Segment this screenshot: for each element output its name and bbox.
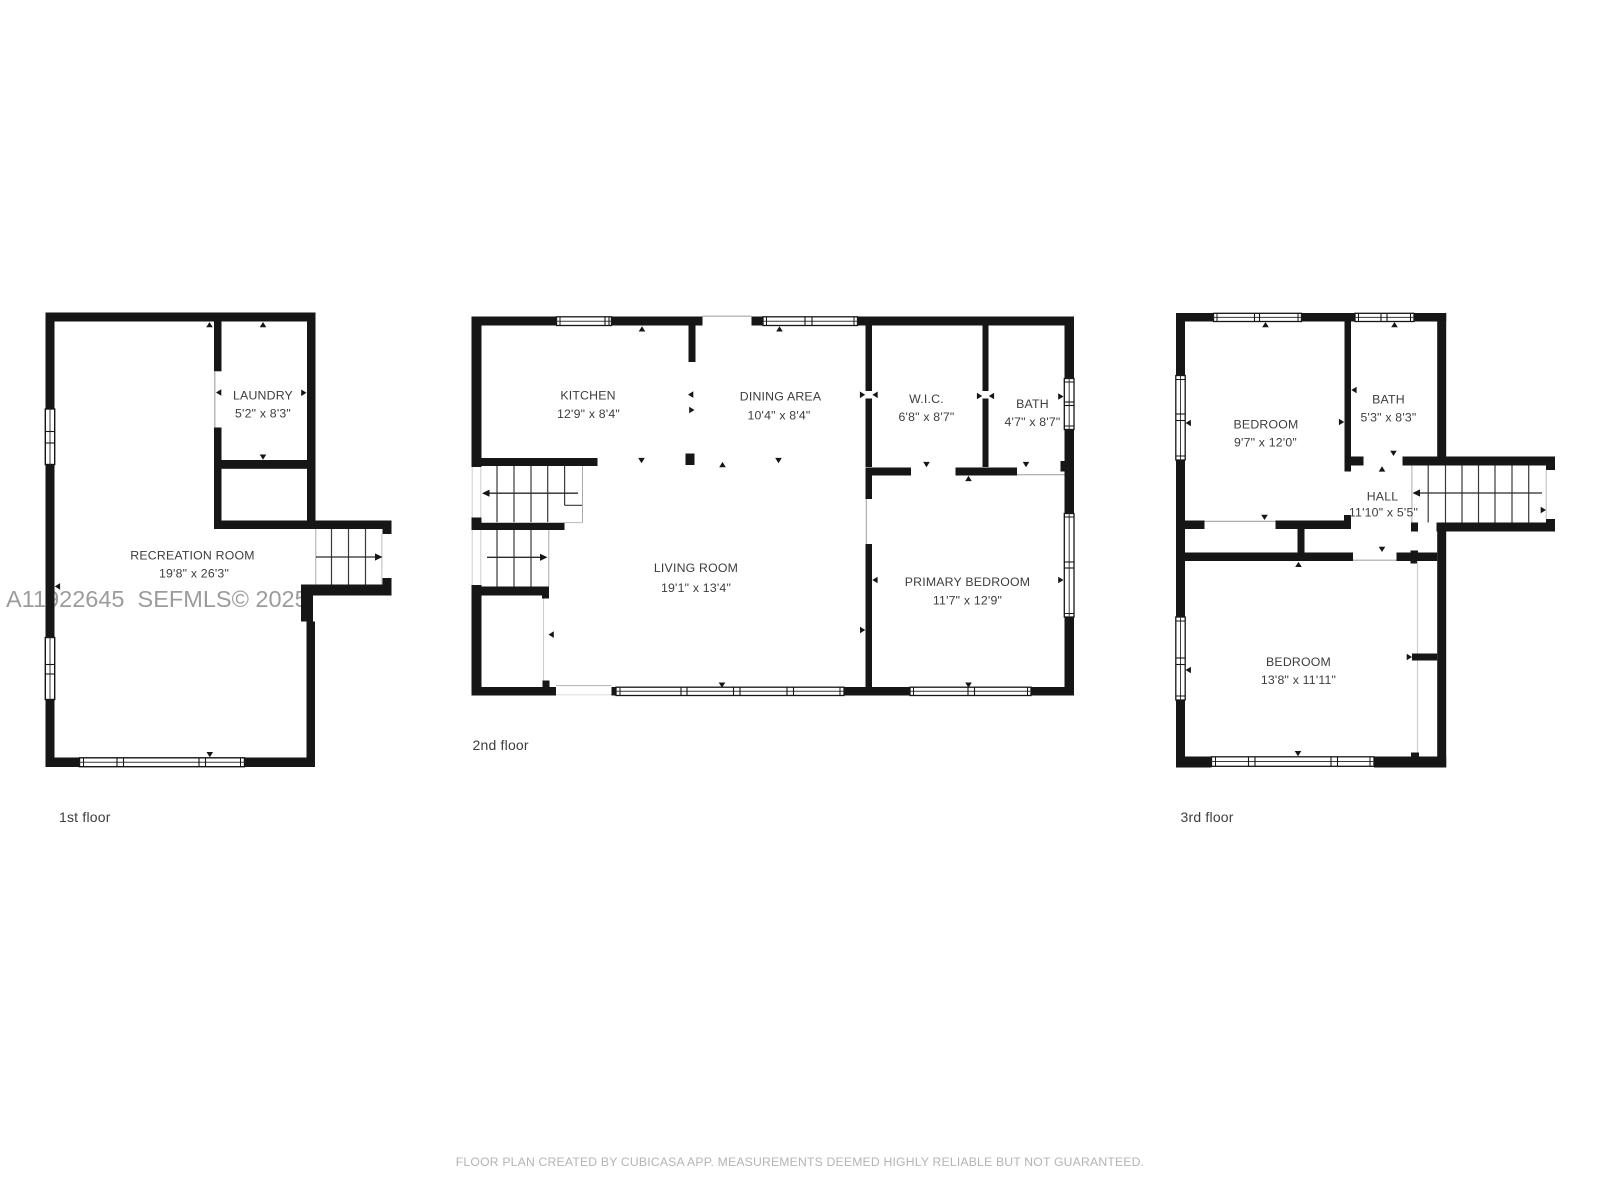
svg-text:LAUNDRY: LAUNDRY <box>233 389 293 403</box>
svg-text:9'7" x 12'0": 9'7" x 12'0" <box>1234 436 1297 450</box>
svg-text:BATH: BATH <box>1016 397 1049 411</box>
svg-text:1st floor: 1st floor <box>59 809 111 825</box>
svg-text:19'1" x 13'4": 19'1" x 13'4" <box>661 581 731 595</box>
svg-text:KITCHEN: KITCHEN <box>560 389 615 403</box>
svg-text:19'8" x 26'3": 19'8" x 26'3" <box>159 567 229 581</box>
svg-text:5'3" x 8'3": 5'3" x 8'3" <box>1361 411 1417 425</box>
svg-text:FLOOR PLAN CREATED BY CUBICASA: FLOOR PLAN CREATED BY CUBICASA APP. MEAS… <box>456 1155 1144 1169</box>
svg-text:HALL: HALL <box>1367 490 1399 504</box>
svg-text:3rd floor: 3rd floor <box>1181 809 1234 825</box>
svg-text:BEDROOM: BEDROOM <box>1234 418 1299 432</box>
svg-text:4'7" x 8'7": 4'7" x 8'7" <box>1005 415 1061 429</box>
svg-text:PRIMARY BEDROOM: PRIMARY BEDROOM <box>905 575 1031 589</box>
svg-text:LIVING ROOM: LIVING ROOM <box>654 561 738 575</box>
svg-text:RECREATION ROOM: RECREATION ROOM <box>130 549 254 563</box>
svg-text:BATH: BATH <box>1372 393 1405 407</box>
svg-text:DINING AREA: DINING AREA <box>740 390 822 404</box>
svg-text:6'8" x 8'7": 6'8" x 8'7" <box>899 410 955 424</box>
svg-text:10'4" x 8'4": 10'4" x 8'4" <box>747 409 810 423</box>
svg-text:2nd floor: 2nd floor <box>473 737 529 753</box>
svg-text:12'9" x 8'4": 12'9" x 8'4" <box>557 407 620 421</box>
svg-text:13'8" x 11'11": 13'8" x 11'11" <box>1261 673 1336 687</box>
svg-text:11'7" x 12'9": 11'7" x 12'9" <box>933 594 1002 608</box>
svg-text:11'10" x 5'5": 11'10" x 5'5" <box>1349 506 1418 520</box>
svg-text:5'2" x 8'3": 5'2" x 8'3" <box>235 407 291 421</box>
svg-text:BEDROOM: BEDROOM <box>1266 655 1331 669</box>
svg-text:W.I.C.: W.I.C. <box>909 392 944 406</box>
